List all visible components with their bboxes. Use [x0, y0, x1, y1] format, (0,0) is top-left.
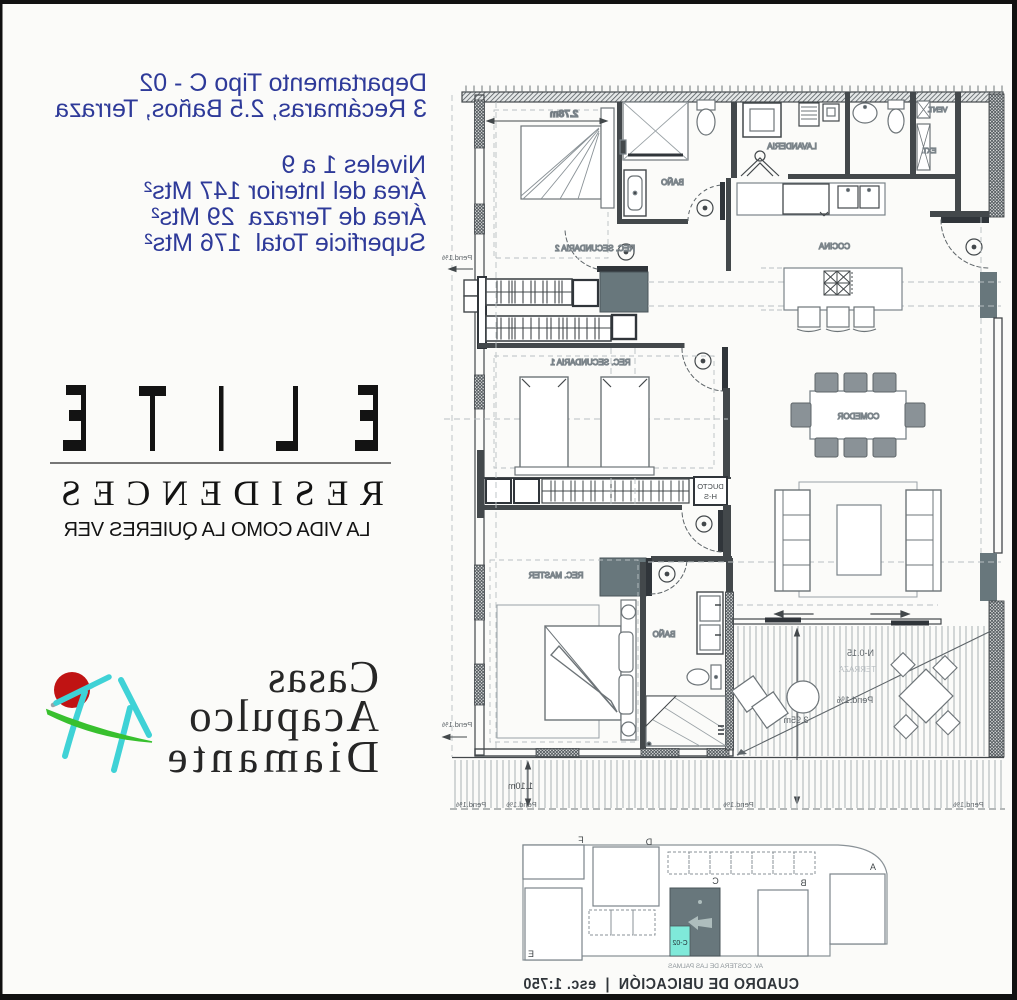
- svg-text:Pend.1%: Pend.1%: [837, 695, 874, 705]
- svg-text:Pend.1%: Pend.1%: [506, 800, 537, 809]
- svg-text:Superficie Total 176 Mts²: Superficie Total 176 Mts²: [144, 229, 426, 257]
- svg-text:RESIDENCES: RESIDENCES: [50, 473, 384, 513]
- svg-text:Pend.1%: Pend.1%: [455, 800, 486, 809]
- svg-text:COCINA: COCINA: [818, 242, 850, 251]
- svg-text:Pend.1%: Pend.1%: [441, 253, 472, 262]
- svg-text:Departamento Tipo C - 02: Departamento Tipo C - 02: [139, 69, 427, 97]
- svg-text:B: B: [800, 878, 806, 888]
- svg-text:C-02: C-02: [672, 940, 687, 947]
- svg-text:2.78m: 2.78m: [550, 109, 578, 120]
- svg-text:TERRAZA: TERRAZA: [838, 665, 876, 674]
- svg-text:COMEDOR: COMEDOR: [837, 412, 879, 421]
- svg-text:Diamante: Diamante: [162, 732, 379, 782]
- svg-text:REC. SECUNDARIA 2: REC. SECUNDARIA 2: [554, 244, 635, 253]
- svg-text:Pend.1%: Pend.1%: [953, 800, 984, 809]
- svg-text:REC. SECUNDARIA 1: REC. SECUNDARIA 1: [550, 358, 631, 367]
- svg-text:Área de Terraza 29 Mts²: Área de Terraza 29 Mts²: [151, 202, 426, 231]
- svg-text:3.95m: 3.95m: [783, 715, 808, 725]
- svg-text:BAÑO: BAÑO: [661, 178, 684, 187]
- svg-text:CUADRO DE UBICACIÓN | esc. 1: CUADRO DE UBICACIÓN | esc. 1:750: [523, 975, 799, 993]
- svg-text:VENT.: VENT.: [928, 107, 948, 114]
- svg-text:LA VIDA COMO LA QUIERES VER: LA VIDA COMO LA QUIERES VER: [64, 519, 371, 541]
- svg-text:C: C: [712, 876, 719, 886]
- svg-text:H-S: H-S: [704, 492, 717, 501]
- svg-text:Pend.1%: Pend.1%: [723, 800, 754, 809]
- svg-text:EXT.: EXT.: [922, 148, 937, 155]
- svg-text:Pend.1%: Pend.1%: [441, 720, 472, 729]
- svg-text:E: E: [528, 949, 534, 959]
- svg-text:LAVANDERIA: LAVANDERIA: [767, 142, 817, 151]
- svg-text:BAÑO: BAÑO: [653, 630, 676, 639]
- svg-text:N-0.15: N-0.15: [847, 648, 874, 658]
- svg-text:AV. COSTERA DE LAS PALMAS: AV. COSTERA DE LAS PALMAS: [667, 963, 763, 970]
- svg-text:1.10m: 1.10m: [508, 781, 533, 791]
- svg-text:Niveles 1 a 9: Niveles 1 a 9: [281, 151, 426, 179]
- svg-text:D: D: [645, 837, 652, 847]
- svg-text:Área del Interior 147 Mts²: Área del Interior 147 Mts²: [144, 176, 426, 205]
- svg-text:REC. MASTER: REC. MASTER: [528, 571, 583, 580]
- svg-text:A: A: [870, 862, 876, 872]
- svg-text:3 Recámaras, 2.5 Baños, Terraz: 3 Recámaras, 2.5 Baños, Terraza: [55, 95, 427, 123]
- svg-text:DUCTO: DUCTO: [697, 482, 724, 491]
- svg-text:F: F: [578, 835, 584, 845]
